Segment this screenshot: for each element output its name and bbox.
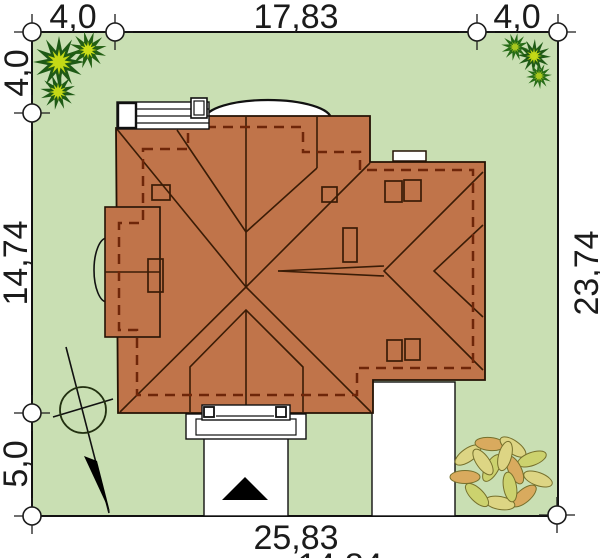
terrace-pergola	[117, 98, 209, 129]
dim-left-top: 4,0	[0, 49, 36, 96]
driveway	[372, 382, 455, 516]
entrance-steps	[186, 405, 306, 439]
dim-top-right: 4,0	[493, 0, 540, 36]
site-plan: 4,0 17,83 4,0 4,0 14,74 5,0 23,74 25,83 …	[0, 0, 600, 558]
dim-right: 23,74	[568, 230, 600, 315]
dim-left-bottom: 5,0	[0, 440, 35, 487]
walkway	[204, 436, 288, 516]
dim-top-center: 17,83	[253, 0, 338, 36]
dim-bottom-partial: 14,84	[297, 547, 382, 558]
pergola-post	[118, 103, 136, 128]
dim-left-middle: 14,74	[0, 220, 35, 305]
dim-top-left: 4,0	[49, 0, 96, 36]
chimney	[393, 151, 426, 161]
site-plan-drawing: 4,0 17,83 4,0 4,0 14,74 5,0 23,74 25,83 …	[0, 0, 600, 558]
